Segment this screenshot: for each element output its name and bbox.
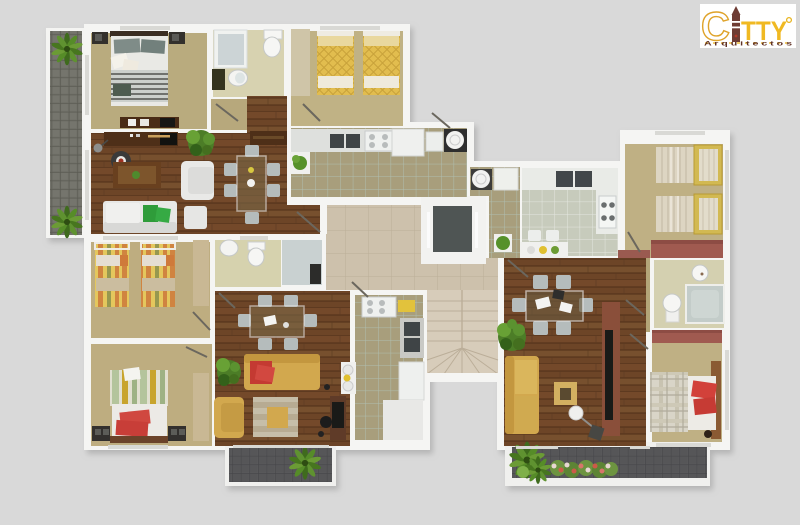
svg-text:A r q u i t e c t o s: A r q u i t e c t o s (704, 42, 793, 48)
